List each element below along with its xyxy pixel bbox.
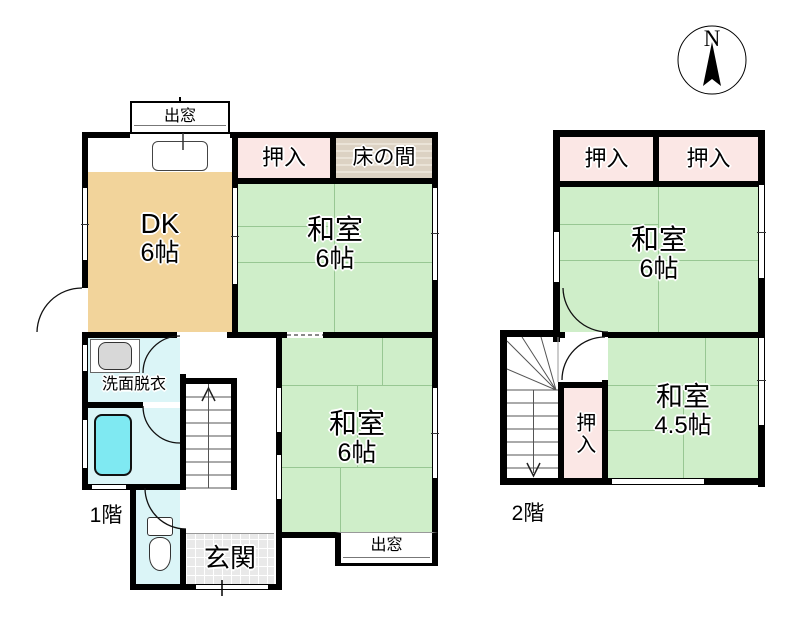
kitchen-sink-icon	[152, 141, 208, 171]
room-size: 6帖	[141, 240, 180, 267]
label-entrance: 玄関	[186, 541, 274, 575]
toilet-bowl-icon	[149, 537, 171, 571]
label-floor1: 1階	[84, 503, 128, 529]
window	[553, 232, 560, 282]
label-tokonoma: 床の間	[336, 139, 432, 177]
door-arc-dk-exterior	[37, 288, 82, 332]
window-tick	[757, 232, 766, 233]
wall	[553, 130, 765, 137]
wall	[558, 382, 564, 485]
room-name: 和室	[656, 383, 710, 412]
label-closet-1f: 押入	[238, 139, 330, 177]
door-opening	[180, 336, 186, 374]
staircase-1f	[186, 384, 231, 488]
door-opening	[82, 288, 88, 332]
label-closet-2f-right: 押入	[659, 139, 758, 179]
staircase-2f	[507, 337, 558, 476]
room-size: 6帖	[316, 246, 355, 273]
window	[758, 338, 765, 425]
label-washroom: 洗面脱衣	[86, 375, 182, 395]
window-tick	[757, 380, 766, 381]
label-bay-window-top: 出窓	[130, 103, 230, 131]
wall	[232, 178, 438, 184]
window	[82, 345, 88, 371]
wall	[500, 330, 558, 337]
room-name: DK	[141, 209, 180, 239]
sliding-opening	[287, 332, 323, 338]
label-closet-2f-lower: 押入	[566, 398, 600, 470]
label-bay-window-bottom: 出窓	[341, 535, 432, 557]
room-size: 4.5帖	[654, 413, 711, 439]
window-tick	[431, 433, 439, 434]
wall	[180, 378, 237, 384]
room-size: 6帖	[338, 440, 377, 467]
bay-window-line	[343, 557, 430, 558]
compass-north-label: N	[700, 27, 724, 51]
room-name: 和室	[329, 409, 385, 439]
room-size: 6帖	[640, 256, 679, 283]
door-opening	[180, 490, 186, 529]
wall	[276, 532, 338, 538]
door-opening	[143, 402, 180, 408]
wall	[605, 332, 765, 338]
washbasin-icon	[98, 342, 132, 370]
floorplan-canvas: N 出窓 DK 6帖 押入 床の間 和室 6帖 和室 6帖 洗面脱衣 玄関 出窓…	[0, 0, 800, 617]
wall	[232, 332, 438, 338]
toilet-tank-icon	[147, 517, 173, 536]
window	[92, 484, 126, 490]
wall	[231, 378, 237, 490]
label-washitsu-upper: 和室 6帖	[238, 206, 432, 282]
tatami-line	[382, 338, 383, 385]
door-opening	[602, 337, 608, 380]
window	[432, 188, 438, 280]
room-name: 和室	[631, 225, 687, 255]
label-floor2: 2階	[504, 501, 552, 527]
entrance-door	[196, 584, 268, 590]
window	[82, 420, 88, 468]
bathtub-icon	[94, 414, 132, 476]
wall	[500, 330, 507, 485]
stairs-up-arrow	[202, 388, 215, 401]
wall	[82, 132, 130, 138]
wall	[130, 490, 136, 590]
label-closet-2f-left: 押入	[560, 139, 653, 179]
label-washitsu-2f-6: 和室 6帖	[560, 216, 758, 292]
window-tick	[431, 233, 439, 234]
label-dk: DK 6帖	[88, 204, 232, 272]
label-washitsu-2f-45: 和室 4.5帖	[608, 378, 758, 444]
tatami-line	[340, 467, 341, 532]
stairs-down-arrow	[527, 463, 540, 476]
label-washitsu-lower: 和室 6帖	[282, 400, 432, 476]
room-name: 和室	[307, 215, 363, 245]
door-arc-2f-landing	[562, 337, 605, 380]
wall	[558, 382, 608, 388]
window	[612, 478, 704, 485]
wall	[553, 181, 765, 187]
